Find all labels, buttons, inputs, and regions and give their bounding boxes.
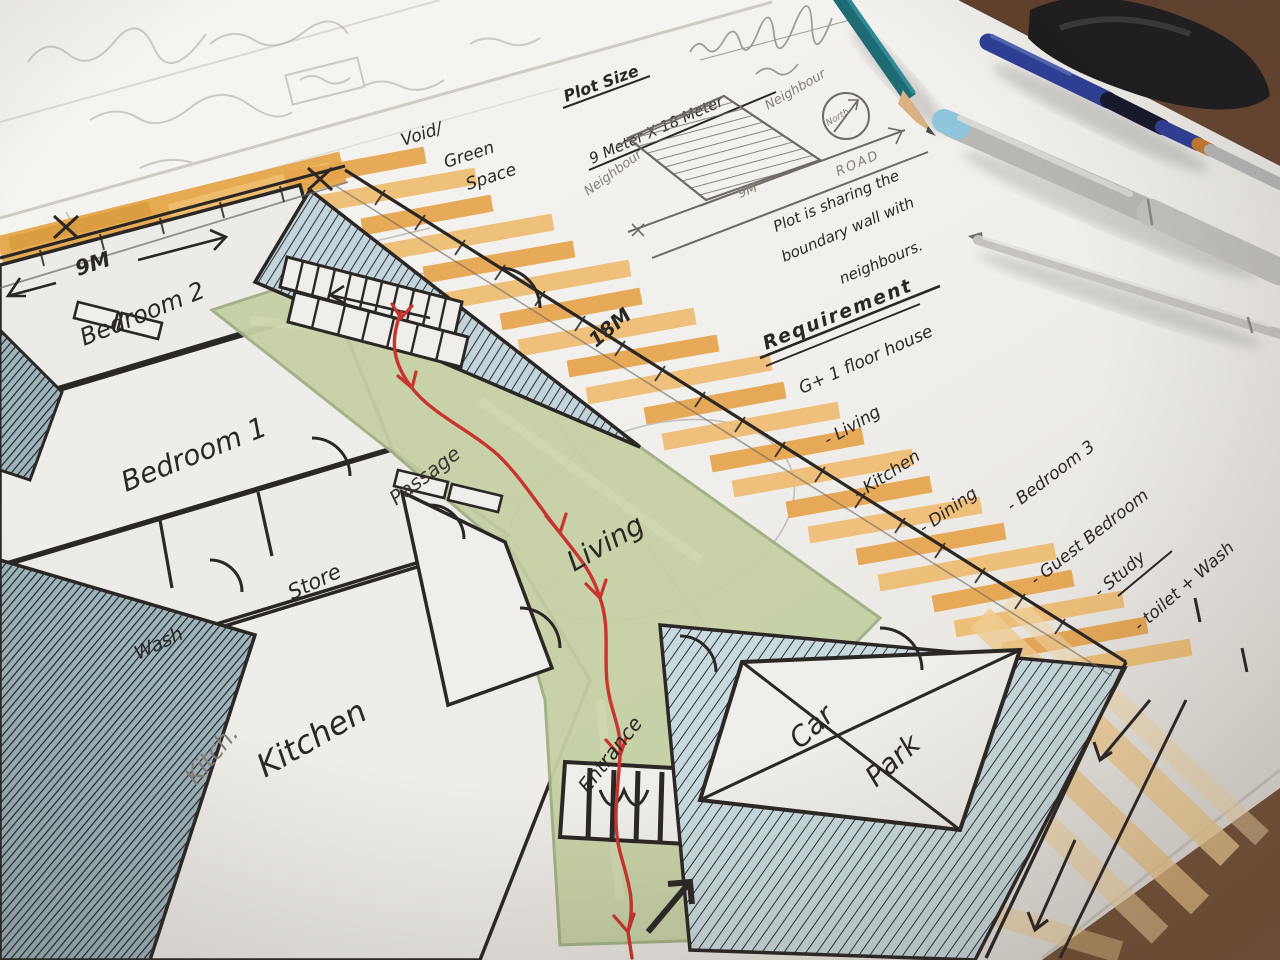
photo-architecture-sketch: 9M 18M Void/ Green Space Bedroom 2 Bedro… — [0, 0, 1280, 960]
